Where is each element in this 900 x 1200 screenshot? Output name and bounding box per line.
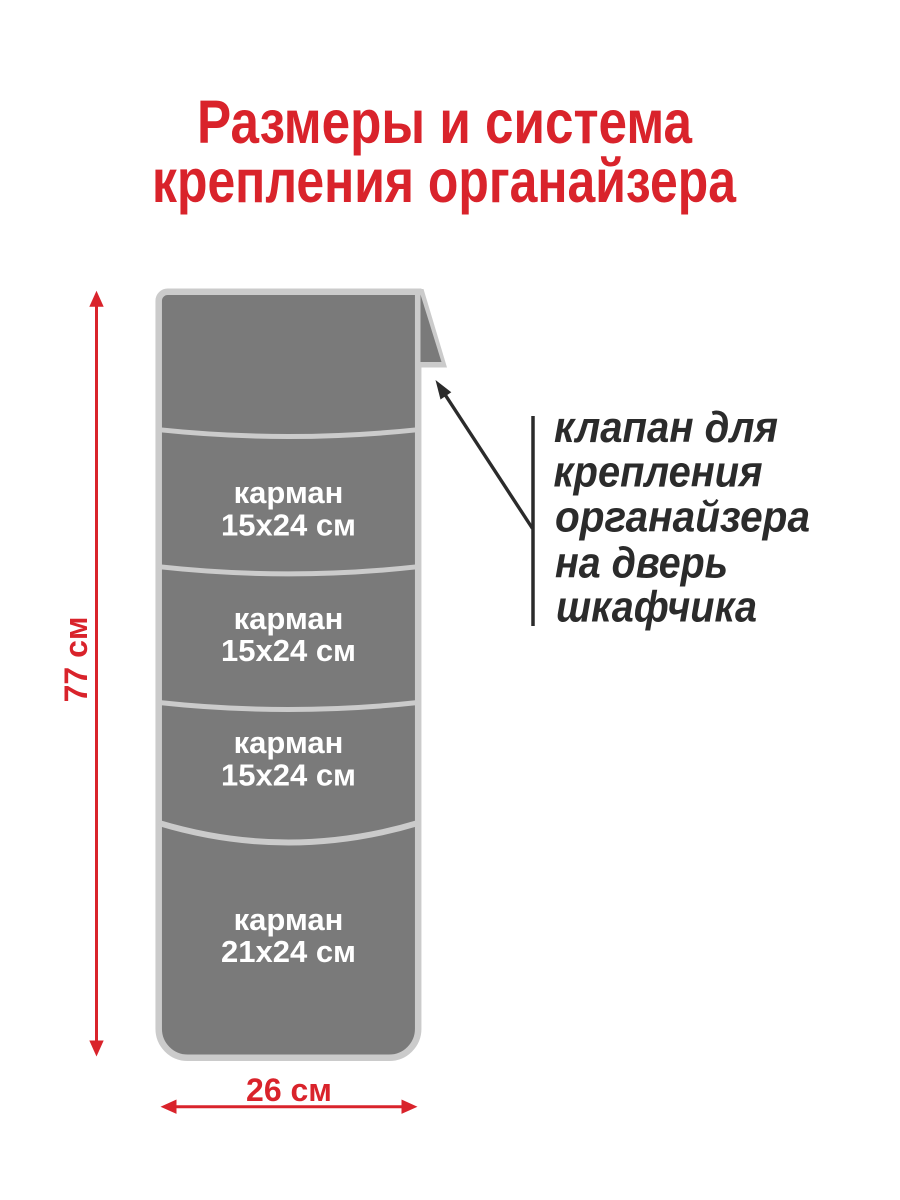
- svg-text:шкафчика: шкафчика: [556, 583, 757, 632]
- svg-text:крепления органайзера: крепления органайзера: [152, 147, 737, 215]
- svg-text:15х24 см: 15х24 см: [221, 633, 356, 668]
- svg-text:карман: карман: [234, 725, 344, 760]
- svg-text:клапан для: клапан для: [554, 403, 778, 452]
- svg-text:на дверь: на дверь: [555, 539, 728, 588]
- svg-text:Размеры и система: Размеры и система: [197, 88, 693, 156]
- svg-text:26 см: 26 см: [246, 1072, 332, 1108]
- svg-text:органайзера: органайзера: [555, 493, 810, 542]
- svg-text:карман: карман: [234, 475, 344, 510]
- svg-text:77 см: 77 см: [58, 616, 94, 702]
- svg-text:крепления: крепления: [554, 448, 763, 497]
- svg-text:карман: карман: [234, 902, 344, 937]
- svg-text:21х24 см: 21х24 см: [221, 934, 356, 969]
- svg-text:15х24 см: 15х24 см: [221, 508, 356, 543]
- svg-text:15х24 см: 15х24 см: [221, 758, 356, 793]
- svg-text:карман: карман: [234, 601, 344, 636]
